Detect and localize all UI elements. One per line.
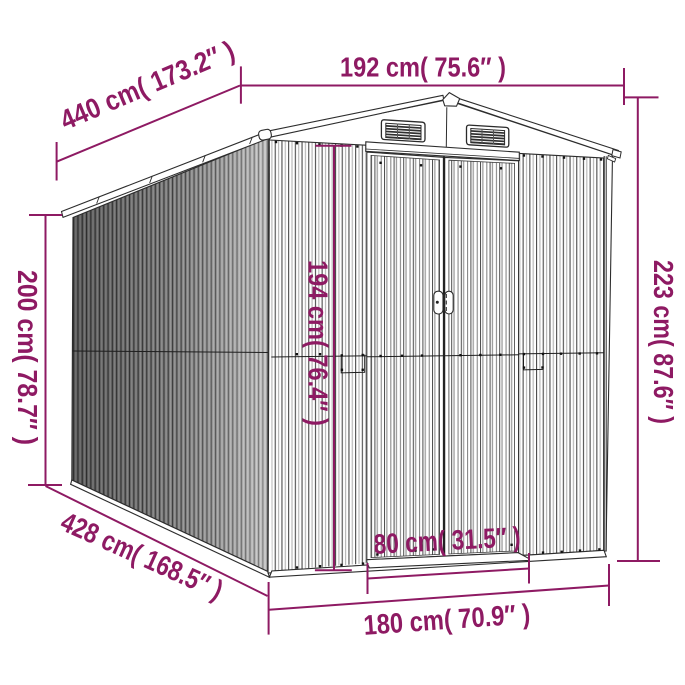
svg-text:200 cm( 78.7″ ): 200 cm( 78.7″ ) (12, 270, 43, 445)
svg-text:223 cm( 87.6″ ): 223 cm( 87.6″ ) (648, 260, 679, 424)
svg-text:192 cm( 75.6″ ): 192 cm( 75.6″ ) (340, 52, 506, 83)
svg-text:194 cm( 76.4″ ): 194 cm( 76.4″ ) (303, 260, 334, 426)
